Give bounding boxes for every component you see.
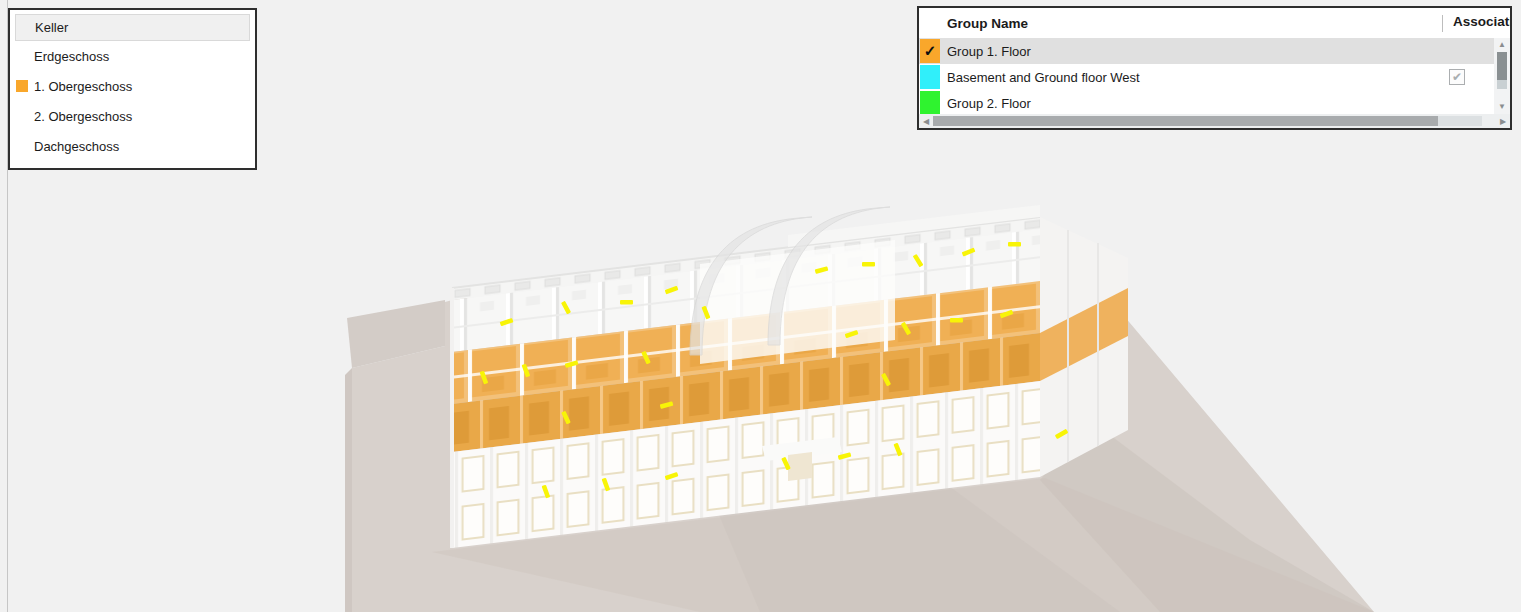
association-checkbox[interactable]: ✔ <box>1449 69 1465 85</box>
floor-highlight-marker <box>16 80 28 92</box>
vertical-scrollbar-track[interactable] <box>1497 80 1507 89</box>
floor-list-panel: Keller Erdgeschoss 1. Obergeschoss 2. Ob… <box>8 8 257 170</box>
column-separator <box>1442 15 1443 32</box>
floor-item-keller[interactable]: Keller <box>15 14 250 41</box>
group-list-panel: Group Name Association ✓ Group 1. Floor … <box>917 6 1512 130</box>
group-row-2[interactable]: Basement and Ground floor West ✔ <box>919 64 1494 90</box>
scroll-down-icon[interactable]: ▼ <box>1494 100 1510 114</box>
group-color-swatch[interactable]: ✓ <box>920 39 940 63</box>
application-window: Keller Erdgeschoss 1. Obergeschoss 2. Ob… <box>0 0 1521 612</box>
floor-item-label: Dachgeschoss <box>34 139 119 154</box>
group-row-3[interactable]: Group 2. Floor <box>919 90 1494 116</box>
floor-item-2-obergeschoss[interactable]: 2. Obergeschoss <box>10 101 255 131</box>
floor-item-1-obergeschoss[interactable]: 1. Obergeschoss <box>10 71 255 101</box>
group-panel-header: Group Name Association <box>919 8 1510 38</box>
floor-item-erdgeschoss[interactable]: Erdgeschoss <box>10 41 255 71</box>
checkbox-check-icon: ✔ <box>1452 70 1462 84</box>
floor-item-label: 1. Obergeschoss <box>34 79 132 94</box>
horizontal-scrollbar[interactable]: ◀ ▶ <box>919 114 1510 128</box>
horizontal-scrollbar-track[interactable] <box>1438 116 1482 126</box>
scroll-right-icon[interactable]: ▶ <box>1496 117 1510 126</box>
floor-item-label: Erdgeschoss <box>34 49 109 64</box>
vertical-scrollbar-thumb[interactable] <box>1497 52 1507 80</box>
group-row-1[interactable]: ✓ Group 1. Floor <box>919 38 1494 64</box>
floor-item-dachgeschoss[interactable]: Dachgeschoss <box>10 131 255 161</box>
column-header-association: Association <box>1453 14 1512 29</box>
horizontal-scrollbar-thumb[interactable] <box>933 116 1438 126</box>
vertical-scrollbar[interactable]: ▲ ▼ <box>1494 38 1510 114</box>
swatch-check-icon: ✓ <box>924 42 937 60</box>
group-color-swatch[interactable] <box>920 91 940 115</box>
scroll-left-icon[interactable]: ◀ <box>919 117 933 126</box>
floor-item-label: 2. Obergeschoss <box>34 109 132 124</box>
scroll-up-icon[interactable]: ▲ <box>1494 38 1510 52</box>
floor-item-label: Keller <box>35 20 68 35</box>
column-header-group-name: Group Name <box>919 16 1028 31</box>
group-name: Basement and Ground floor West <box>919 70 1140 85</box>
group-color-swatch[interactable] <box>920 65 940 89</box>
